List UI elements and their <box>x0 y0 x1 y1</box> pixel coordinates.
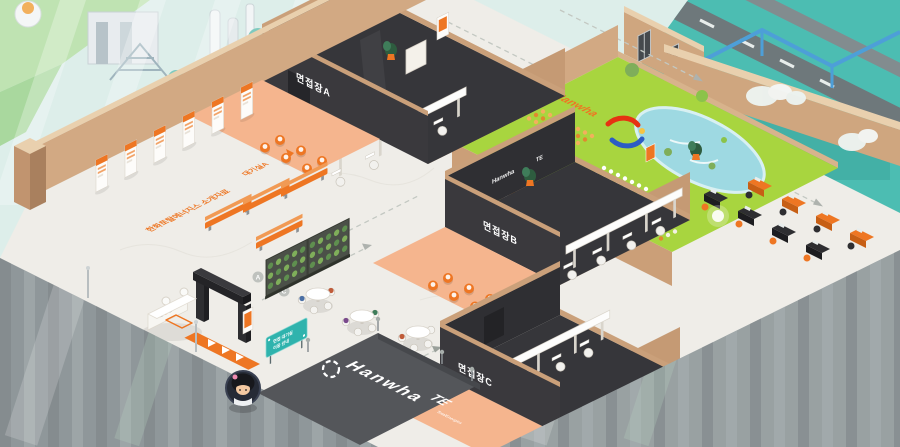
player-avatar[interactable] <box>226 371 260 413</box>
chair[interactable] <box>438 126 447 135</box>
booth-chair[interactable] <box>736 221 743 228</box>
chair[interactable] <box>336 177 345 186</box>
waiting-stool[interactable] <box>449 291 459 303</box>
zone-letter-a: A <box>256 275 261 282</box>
chair[interactable] <box>369 161 378 170</box>
avatar-flower-clip <box>233 375 238 380</box>
info-kiosk[interactable] <box>243 307 253 334</box>
metaverse-map: Hanwha Hanwha TE 면접장A Hanwha TE <box>0 0 900 447</box>
booth-chair[interactable] <box>770 238 777 245</box>
floor-lamp <box>712 210 724 222</box>
chair[interactable] <box>584 348 593 357</box>
booth-chair[interactable] <box>746 192 753 199</box>
chair[interactable] <box>627 241 636 250</box>
chair[interactable] <box>597 256 606 265</box>
waiting-stool[interactable] <box>296 146 306 158</box>
booth-chair[interactable] <box>702 204 709 211</box>
chair[interactable] <box>568 270 577 279</box>
chair[interactable] <box>656 226 665 235</box>
chair[interactable] <box>556 362 565 371</box>
waiting-stool[interactable] <box>443 273 453 285</box>
waiting-stool[interactable] <box>260 143 270 155</box>
booth-chair[interactable] <box>814 226 821 233</box>
booth-chair[interactable] <box>780 209 787 216</box>
booth-chair[interactable] <box>848 243 855 250</box>
booth-chair[interactable] <box>804 255 811 262</box>
waiting-stool[interactable] <box>428 281 438 293</box>
waiting-stool[interactable] <box>464 284 474 296</box>
waiting-stool[interactable] <box>275 135 285 147</box>
